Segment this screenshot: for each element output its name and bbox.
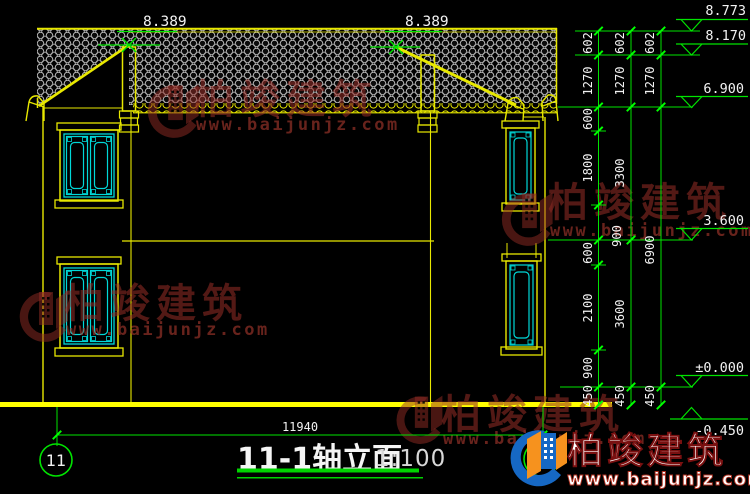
ridge-dim-label: 8.389 xyxy=(143,14,187,30)
dim-text: 600 xyxy=(581,108,595,130)
elevation-label: ±0.000 xyxy=(695,360,744,376)
span-dim-text: 11940 xyxy=(282,420,318,434)
elevation-label: 8.170 xyxy=(705,28,746,44)
dim-text: 602 xyxy=(643,32,657,54)
watermark-url: www.baijunjz.com xyxy=(196,115,400,135)
dim-text: 602 xyxy=(581,32,595,54)
elevation-label: 6.900 xyxy=(703,81,744,97)
dim-text: 1270 xyxy=(643,67,657,96)
elevation-drawing: 柏竣建筑 www.baijunjz.com 柏竣建筑 www.baijunjz.… xyxy=(0,0,750,494)
dim-text: 900 xyxy=(581,357,595,379)
logo-brand-text: 柏竣建筑 xyxy=(567,431,727,472)
ridge-dim-label: 8.389 xyxy=(405,14,449,30)
dim-text: 2100 xyxy=(581,294,595,323)
grid-bubble-label: 11 xyxy=(46,451,66,470)
drawing-scale: 1:100 xyxy=(375,446,446,472)
dim-text: 1270 xyxy=(613,67,627,96)
dim-text: 1270 xyxy=(581,67,595,96)
logo-url-text: www.baijunjz.com xyxy=(567,469,750,490)
title-underline-thin xyxy=(237,477,423,479)
dim-text: 450 xyxy=(613,385,627,407)
dim-text: 900 xyxy=(610,225,624,247)
dim-text: 450 xyxy=(643,385,657,407)
dim-text: 602 xyxy=(613,32,627,54)
dim-text: 6900 xyxy=(643,236,657,265)
elevation-label: 8.773 xyxy=(705,3,746,19)
dim-text: 450 xyxy=(581,385,595,407)
watermark-url: www.baijunjz.com xyxy=(66,320,270,340)
logo-mark xyxy=(511,430,567,486)
dim-text: 3300 xyxy=(613,159,627,188)
dim-text: 600 xyxy=(581,242,595,264)
elevation-label: 3.600 xyxy=(703,213,744,229)
title-underline-thick xyxy=(237,469,419,473)
dim-text: 1800 xyxy=(581,154,595,183)
dim-text: 3600 xyxy=(613,300,627,329)
brand-logo: 柏竣建筑 www.baijunjz.com xyxy=(511,430,750,490)
cad-viewport: 柏竣建筑 www.baijunjz.com 柏竣建筑 www.baijunjz.… xyxy=(0,0,750,494)
